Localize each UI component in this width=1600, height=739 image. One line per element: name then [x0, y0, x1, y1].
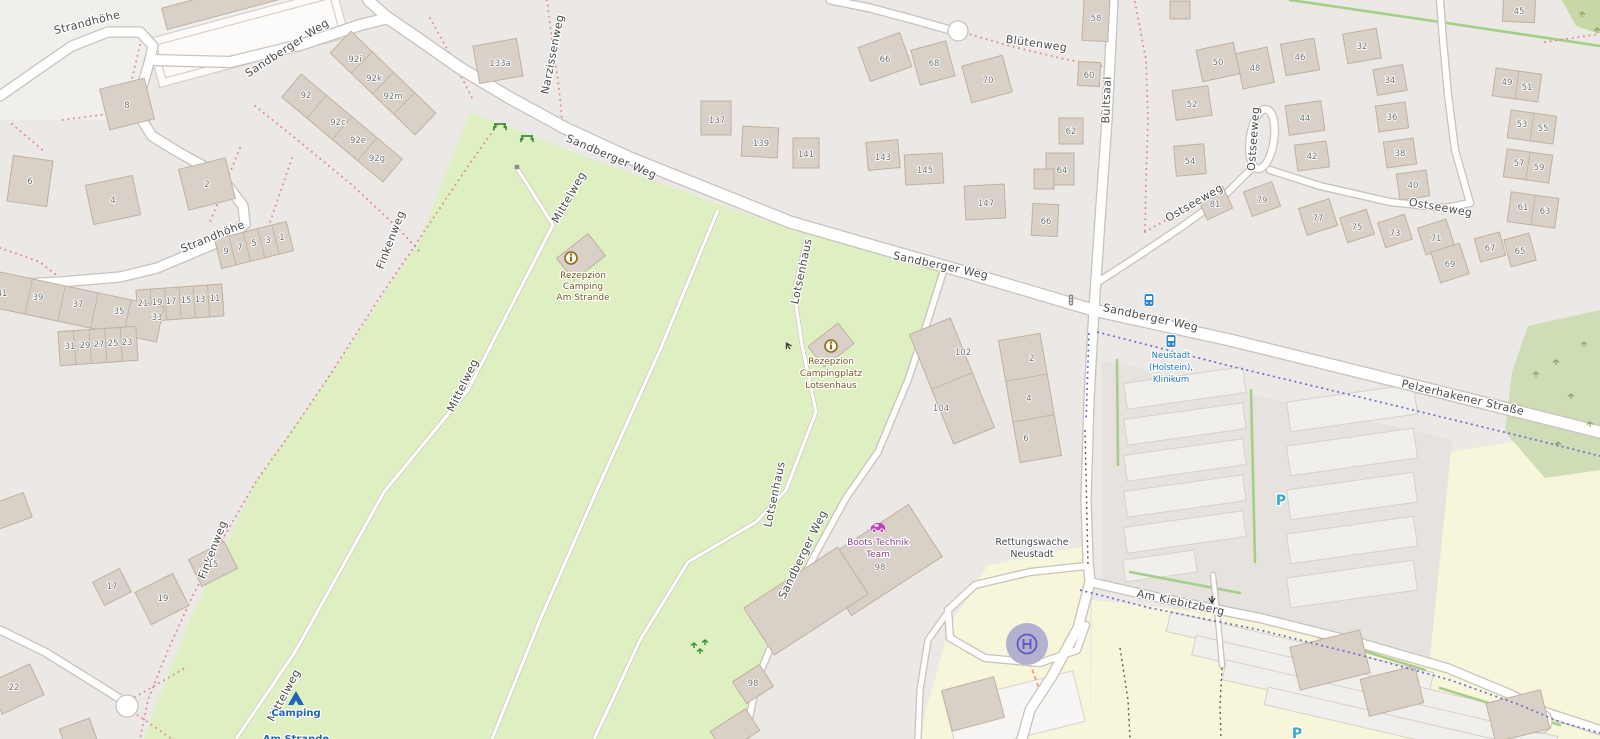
house-number: 143 — [875, 153, 891, 163]
house-number: 98 — [875, 563, 886, 573]
house-number: 57 — [1514, 159, 1525, 169]
info-icon — [565, 252, 577, 264]
house-number: 25 — [108, 339, 119, 349]
house-number: 35 — [114, 307, 125, 317]
info-icon — [825, 340, 837, 352]
house-number: 79 — [1257, 196, 1268, 206]
label-camp: Camping — [271, 708, 320, 719]
house-number: 23 — [122, 338, 133, 348]
house-number: 33 — [152, 313, 163, 323]
house-number: 81 — [1210, 200, 1221, 210]
house-number: 34 — [1385, 76, 1396, 86]
house-number: 19 — [152, 298, 163, 308]
house-number: 19 — [158, 594, 169, 604]
house-number: 45 — [1514, 7, 1525, 17]
house-number: 40 — [1408, 181, 1419, 191]
house-number: 49 — [1502, 78, 1513, 88]
house-number: 62 — [1066, 127, 1077, 137]
label-plc: Neustadt — [1010, 549, 1053, 560]
house-number: 92 — [301, 91, 312, 101]
map-svg[interactable]: StrandhöheStrandhöheSandberger WegSandbe… — [0, 0, 1600, 739]
house-number: 41 — [0, 289, 7, 299]
house-number: 68 — [929, 59, 940, 69]
house-number: 7 — [237, 243, 242, 253]
label-shop: Boots Technik — [847, 538, 910, 548]
house-number: 1 — [279, 233, 284, 243]
info-icon — [830, 341, 832, 343]
house-number: 8 — [124, 101, 129, 111]
bus-stop-icon — [1166, 334, 1177, 348]
house-number: 39 — [33, 293, 44, 303]
house-number: 141 — [798, 150, 814, 160]
house-number: 137 — [709, 116, 725, 126]
bus-stop-icon — [1150, 302, 1152, 304]
house-number: 38 — [1395, 149, 1406, 159]
info-icon — [570, 257, 572, 262]
house-number: 36 — [1387, 113, 1398, 123]
helipad-icon — [1006, 623, 1048, 665]
label-poi: Rezepzion — [560, 271, 606, 281]
hedge-line — [1117, 360, 1118, 465]
house-number: 66 — [880, 55, 891, 65]
label-camp: Am Strande — [263, 734, 330, 739]
label-poi: Camping — [563, 282, 603, 292]
house-number: 98 — [748, 679, 759, 689]
bus-stop-icon — [1146, 296, 1152, 300]
house-number: 147 — [978, 199, 994, 209]
house-number: 102 — [955, 348, 971, 358]
house-number: 70 — [983, 76, 994, 86]
house-number: 133a — [489, 59, 510, 69]
house-number: 92e — [350, 136, 366, 146]
house-number: 92i — [348, 55, 361, 65]
house-number: 52 — [1187, 100, 1198, 110]
house-number: 75 — [1352, 223, 1363, 233]
house-number: 48 — [1250, 64, 1261, 74]
house-number: 65 — [1515, 247, 1526, 257]
house-number: 64 — [1057, 166, 1068, 176]
house-number: 13 — [195, 295, 206, 305]
house-number: 145 — [917, 166, 933, 176]
house-number: 31 — [65, 342, 76, 352]
house-number: 37 — [73, 300, 84, 310]
house-number: 46 — [1295, 53, 1306, 63]
label-poi: Am Strande — [556, 293, 610, 303]
traffic-signal-icon — [1070, 299, 1072, 301]
house-number: 92c — [330, 118, 346, 128]
house-number: 21 — [138, 299, 149, 309]
house-number: 69 — [1445, 260, 1456, 270]
house-number: 5 — [251, 239, 256, 249]
house-number: 60 — [1084, 71, 1095, 81]
street-label: Bültsaal — [1099, 76, 1114, 124]
label-poi: Campingplatz — [800, 369, 862, 379]
culdesac-bulb — [116, 695, 138, 717]
info-icon — [830, 345, 832, 350]
house-number: 67 — [1485, 244, 1496, 254]
house-number: 11 — [210, 294, 221, 304]
bus-stop-icon — [1172, 343, 1174, 345]
house-number: 104 — [933, 404, 949, 414]
bus-stop-icon — [1146, 302, 1148, 304]
house-number: 15 — [181, 296, 192, 306]
map-canvas[interactable]: StrandhöheStrandhöheSandberger WegSandbe… — [0, 0, 1600, 739]
house-number: 66 — [1041, 217, 1052, 227]
house-number: 92k — [366, 74, 382, 84]
house-number: 50 — [1213, 58, 1224, 68]
label-poi: Lotsenhaus — [805, 381, 857, 391]
house-number: 139 — [753, 139, 769, 149]
traffic-signal-icon — [1069, 295, 1073, 306]
info-icon — [570, 253, 572, 255]
label-plc: Rettungswache — [995, 537, 1068, 548]
car-repair-icon — [872, 529, 876, 533]
house-number: 17 — [107, 582, 118, 592]
culdesac-bulb — [948, 21, 968, 41]
label-pk: P — [1292, 726, 1302, 739]
gate-icon — [515, 165, 519, 169]
house-number: 2 — [204, 180, 209, 190]
house-number: 73 — [1390, 229, 1401, 239]
bus-stop-icon — [1144, 293, 1155, 307]
house-number: 29 — [80, 341, 91, 351]
house-number: 9 — [223, 247, 228, 257]
building — [1170, 1, 1190, 19]
bus-stop-icon — [1168, 343, 1170, 345]
house-number: 32 — [1357, 42, 1368, 52]
bus-stop-icon — [1168, 337, 1174, 341]
label-pk: P — [1276, 493, 1286, 509]
house-number: 27 — [94, 340, 105, 350]
house-number: 44 — [1300, 114, 1311, 124]
house-number: 4 — [110, 196, 115, 206]
building — [1034, 169, 1054, 189]
house-number: 51 — [1522, 83, 1533, 93]
car-repair-icon — [880, 529, 884, 533]
house-number: 71 — [1431, 234, 1442, 244]
house-number: 63 — [1540, 207, 1551, 217]
house-number: 59 — [1534, 163, 1545, 173]
car-repair-icon — [875, 524, 879, 526]
house-number: 92m — [383, 92, 402, 102]
house-number: 55 — [1538, 124, 1549, 134]
label-poi: Rezepzion — [808, 357, 854, 367]
house-number: 17 — [166, 297, 177, 307]
traffic-signal-icon — [1070, 296, 1072, 298]
house-number: 92g — [369, 154, 385, 164]
house-number: 77 — [1313, 214, 1324, 224]
house-number: 42 — [1307, 152, 1318, 162]
house-number: 54 — [1185, 157, 1196, 167]
house-number: 58 — [1091, 14, 1102, 24]
traffic-signal-icon — [1070, 302, 1072, 304]
label-tr: Neustadt — [1152, 351, 1191, 361]
label-shop: Team — [865, 550, 890, 560]
house-number: 6 — [1023, 434, 1028, 444]
gate-icon — [515, 165, 519, 169]
house-number: 22 — [9, 683, 20, 693]
house-number: 61 — [1518, 203, 1529, 213]
house-number: 15 — [208, 560, 219, 570]
house-number: 2 — [1029, 354, 1034, 364]
label-tr: Klinikum — [1153, 375, 1189, 385]
house-number: 53 — [1517, 120, 1528, 130]
house-number: 6 — [27, 177, 32, 187]
house-number: 4 — [1026, 394, 1031, 404]
house-number: 3 — [265, 236, 270, 246]
label-tr: (Holstein), — [1149, 363, 1193, 373]
